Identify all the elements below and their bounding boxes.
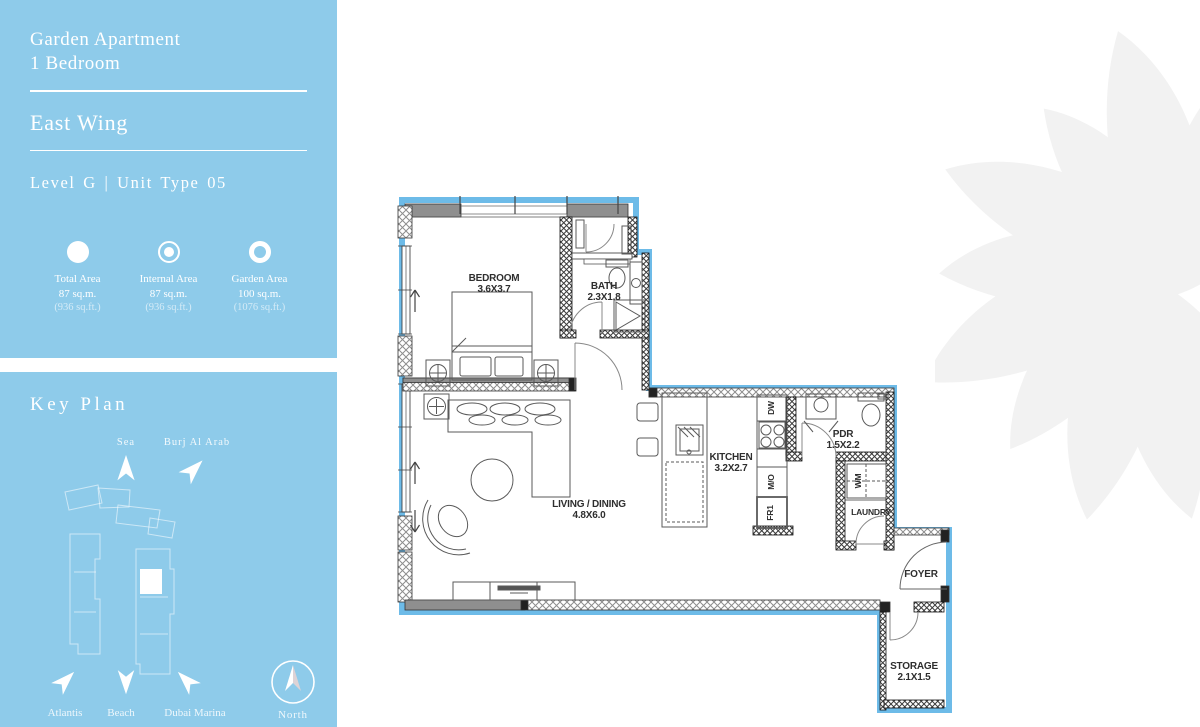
living-dims: 4.8X6.0: [572, 510, 606, 521]
living-name: LIVING / DINING: [552, 499, 626, 510]
unit-info-panel: Garden Apartment 1 Bedroom East Wing Lev…: [0, 0, 337, 358]
vanity-fixture-bath: [630, 262, 642, 304]
bath-dims: 2.3X1.8: [587, 292, 621, 303]
key-plan-graphic: Key Plan Sea Burj Al Arab: [0, 372, 337, 727]
area-label: Internal Area: [123, 272, 214, 287]
coffee-table-furniture: [471, 459, 513, 501]
north-compass: [272, 661, 314, 703]
internal-area-stat: Internal Area 87 sq.m. (936 sq.ft.): [123, 241, 214, 315]
fridge-label: FR1: [765, 505, 775, 521]
tv-console-furniture: [453, 582, 575, 600]
bathtub-fixture: [614, 300, 645, 332]
storage-door: [890, 612, 918, 640]
garden-area-stat: Garden Area 100 sq.m. (1076 sq.ft.): [214, 241, 305, 315]
room-label-laundry: LAUNDRY: [851, 507, 891, 517]
sea-label: Sea: [117, 437, 135, 448]
level-unit-type: Level G | Unit Type 05: [30, 173, 307, 193]
divider: [30, 90, 307, 92]
laundry-door: [856, 516, 884, 544]
unit-title-line1: Garden Apartment: [30, 28, 307, 52]
electrical-symbol: [424, 394, 449, 419]
bedroom-dims: 3.6X3.7: [477, 284, 511, 295]
pdr-name: PDR: [833, 429, 854, 440]
room-label-foyer: FOYER: [904, 569, 938, 580]
floor-plan: BEDROOM 3.6X3.7 BATH 2.3X1.8 LIVING / DI…: [385, 185, 970, 727]
key-plan-panel: Key Plan Sea Burj Al Arab: [0, 372, 337, 727]
direction-arrows: [411, 290, 420, 532]
hall-door: [575, 343, 622, 390]
washing-machine-label: WM: [853, 474, 863, 489]
bed-furniture: [452, 292, 532, 380]
storage-dims: 2.1X1.5: [897, 672, 931, 683]
key-plan-title: Key Plan: [30, 394, 128, 415]
sofa-furniture: [448, 400, 570, 497]
area-label: Garden Area: [214, 272, 305, 287]
bath-name: BATH: [591, 281, 617, 292]
wing-title: East Wing: [30, 110, 307, 136]
bedroom-name: BEDROOM: [469, 273, 520, 284]
bath-door: [570, 302, 602, 334]
beach-label: Beach: [107, 707, 135, 719]
dishwasher-label: DW: [766, 400, 776, 415]
pdr-dims: 1.5X2.2: [826, 440, 860, 451]
area-imperial: (936 sq.ft.): [32, 301, 123, 315]
highlighted-unit: [140, 569, 162, 594]
room-label-pdr: PDR 1.5X2.2: [826, 429, 860, 451]
up-arrow: [411, 290, 420, 312]
area-stats: Total Area 87 sq.m. (936 sq.ft.) Interna…: [30, 241, 307, 315]
beach-arrow-icon: [118, 670, 135, 694]
room-label-storage: STORAGE 2.1X1.5: [890, 661, 938, 683]
sink-fixture-pdr: [804, 394, 838, 432]
area-imperial: (936 sq.ft.): [123, 301, 214, 315]
storage-name: STORAGE: [890, 661, 938, 672]
kitchen-island: [662, 393, 707, 527]
area-metric: 87 sq.m.: [32, 287, 123, 302]
unit-title-line2: 1 Bedroom: [30, 52, 307, 76]
up-arrow: [411, 462, 420, 484]
area-metric: 100 sq.m.: [214, 287, 305, 302]
burj-al-arab-arrow-icon: [179, 454, 209, 484]
dubai-marina-label: Dubai Marina: [164, 707, 226, 719]
filled-circle-icon: [67, 241, 89, 263]
shower-fixture: [576, 220, 631, 254]
bar-stool: [637, 403, 658, 421]
sea-arrow-icon: [117, 455, 134, 480]
dubai-marina-arrow-icon: [172, 666, 201, 695]
petal-ornament: [935, 0, 1200, 585]
toilet-fixture-pdr: [858, 393, 888, 426]
bar-stool: [637, 438, 658, 456]
divider: [30, 150, 307, 152]
room-label-living: LIVING / DINING 4.8X6.0: [552, 499, 626, 521]
petal-group: [935, 22, 1200, 527]
north-label: North: [278, 709, 308, 721]
room-label-kitchen: KITCHEN 3.2X2.7: [709, 452, 752, 474]
atlantis-label: Atlantis: [48, 707, 83, 719]
area-metric: 87 sq.m.: [123, 287, 214, 302]
room-label-bath: BATH 2.3X1.8: [587, 281, 621, 303]
armchair-furniture: [423, 500, 474, 555]
burj-al-arab-label: Burj Al Arab: [164, 437, 230, 448]
dot-in-ring-icon: [158, 241, 180, 263]
kitchen-name: KITCHEN: [709, 452, 752, 463]
microwave-oven-label: M/O: [766, 474, 776, 490]
shower-door: [586, 224, 614, 252]
entry-door: [900, 542, 947, 589]
atlantis-arrow-icon: [51, 666, 80, 695]
ring-circle-icon: [249, 241, 271, 263]
area-imperial: (1076 sq.ft.): [214, 301, 305, 315]
area-label: Total Area: [32, 272, 123, 287]
total-area-stat: Total Area 87 sq.m. (936 sq.ft.): [32, 241, 123, 315]
kitchen-dims: 3.2X2.7: [714, 463, 748, 474]
